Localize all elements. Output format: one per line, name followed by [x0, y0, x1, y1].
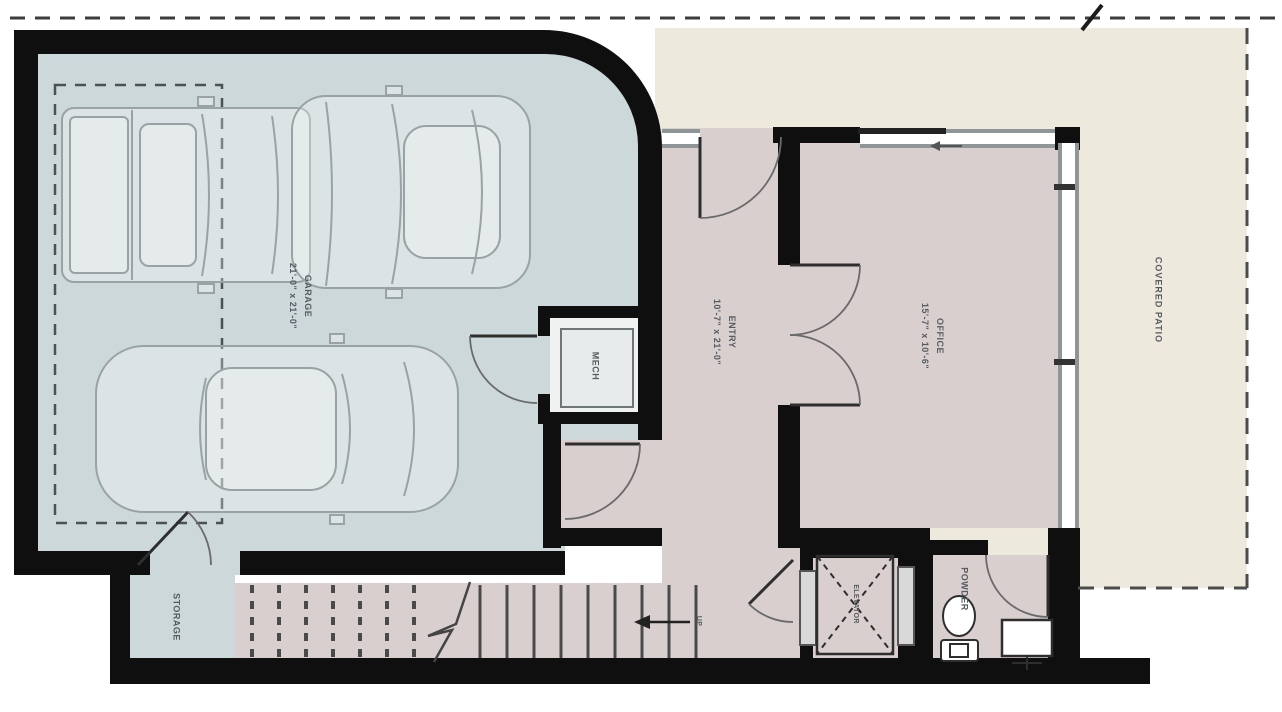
mech-label: MECH — [588, 352, 603, 381]
garage-label: GARAGE 21'-0" x 21'-0" — [285, 263, 315, 329]
slider-arrow — [930, 141, 962, 151]
office-label: OFFICE 15'-7" x 10'-6" — [917, 303, 947, 369]
stair-hall-door — [749, 560, 793, 622]
covered-patio-label: COVERED PATIO — [1151, 257, 1166, 343]
suv-car-icon — [292, 86, 530, 298]
entry-front-door — [700, 137, 781, 218]
vestibule-door — [565, 444, 640, 519]
stair-break-line — [428, 582, 470, 662]
plan-linework — [0, 0, 1282, 712]
storage-label: STORAGE — [169, 593, 184, 641]
powder-label: POWDER — [957, 567, 972, 611]
elevator-label: ELEVATOR — [850, 584, 860, 623]
garage-man-door — [470, 336, 537, 403]
storage-door — [138, 512, 211, 565]
stair-treads-dashed — [252, 585, 414, 658]
entry-label: ENTRY 10'-7" x 21'-0" — [709, 299, 739, 365]
pickup-truck-icon — [62, 97, 310, 293]
powder-door — [986, 555, 1048, 617]
up-label: UP — [693, 616, 703, 626]
sink-icon — [1002, 620, 1052, 670]
sports-car-icon — [96, 334, 458, 524]
floor-plan: GARAGE 21'-0" x 21'-0" ENTRY 10'-7" x 21… — [0, 0, 1282, 712]
office-double-doors — [790, 265, 860, 405]
